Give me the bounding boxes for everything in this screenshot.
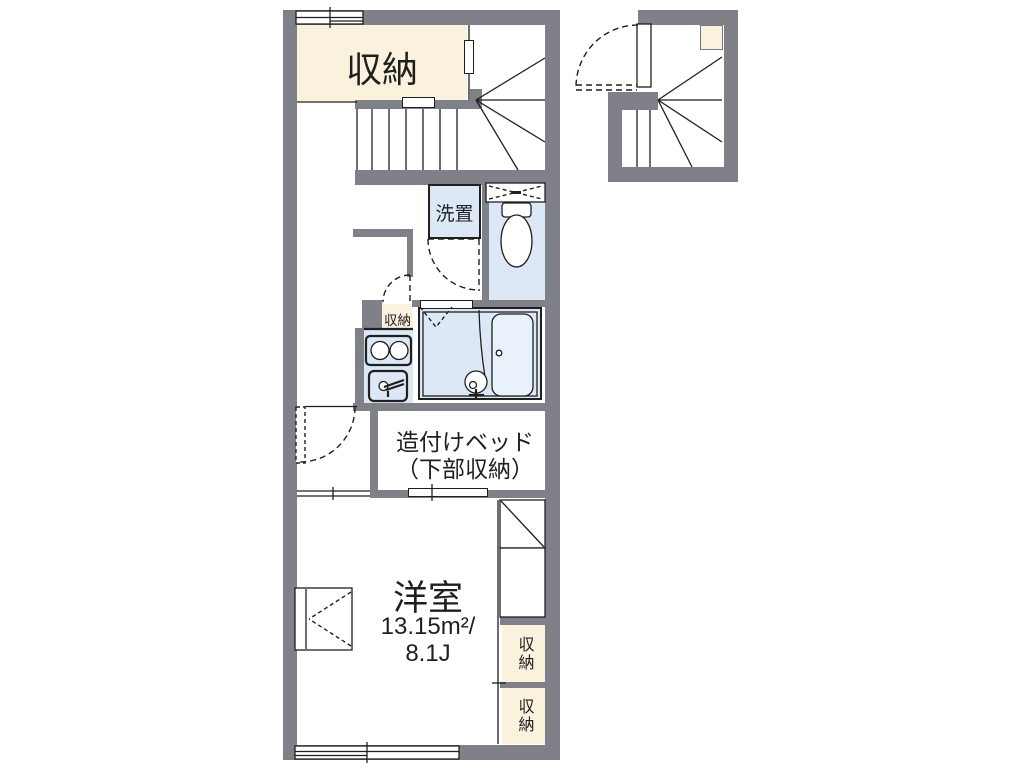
bath-folding-door [420, 307, 452, 327]
storage-right-bottom-label: 収納 [502, 688, 545, 744]
storage-right-top-label: 収納 [502, 625, 545, 682]
toilet-door-swing [428, 239, 479, 291]
kitchen-fixtures [364, 329, 413, 401]
bed-boundary-line [297, 484, 432, 501]
bath-interior [423, 310, 537, 399]
hall-closet-label: 収納 [382, 309, 413, 329]
room-area-m2-label: 13.15m²/ [343, 613, 513, 641]
toilet-icon [501, 203, 532, 267]
floor-plan: 収納 洗置 収納 造付けベッド （下部収納） 洋室 13.15m²/ 8.1J … [0, 0, 1017, 772]
bed-label-line2: （下部収納） [377, 450, 553, 484]
washer-label: 洗置 [428, 199, 481, 226]
bottom-window [295, 742, 459, 763]
bedroom-entry-door [296, 407, 357, 464]
hall-door-swing [383, 275, 410, 302]
top-window [296, 7, 363, 28]
toilet-window [486, 183, 545, 202]
external-entry-door [576, 24, 651, 90]
storage-top-label: 収納 [297, 41, 467, 93]
room-area-jo-label: 8.1J [343, 640, 513, 668]
